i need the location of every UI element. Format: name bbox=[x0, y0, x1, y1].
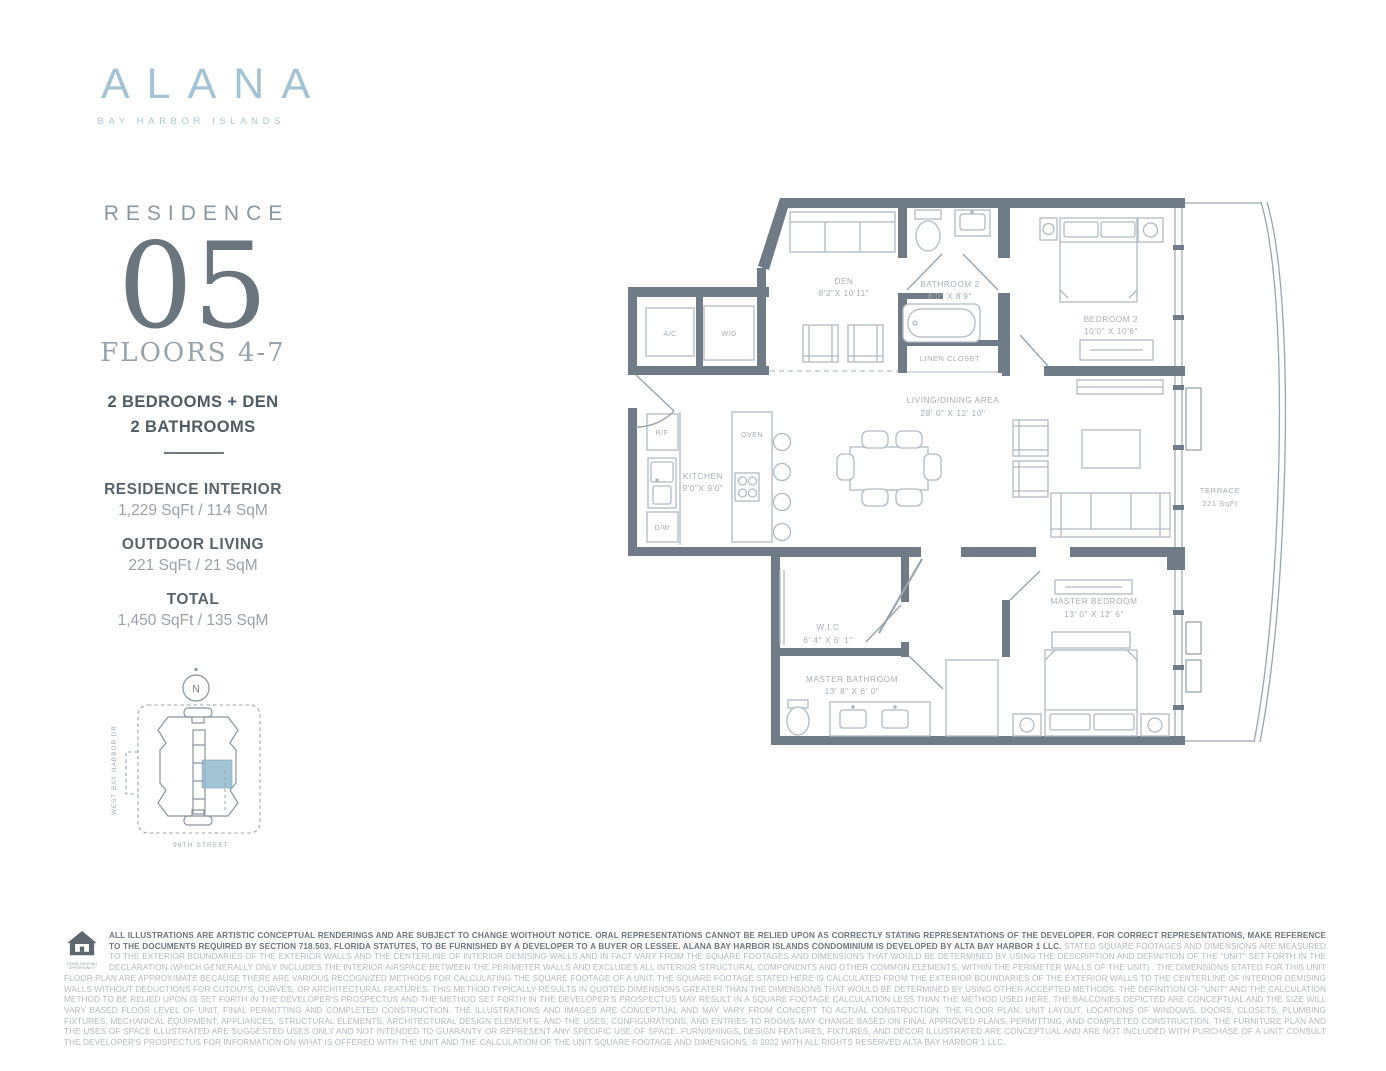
brand-tagline: BAY HARBOR ISLANDS bbox=[84, 116, 294, 127]
bathroom2-sink bbox=[955, 210, 990, 236]
master-bedroom-dims: 13' 0" X 12' 6" bbox=[1064, 610, 1124, 619]
stat-label: TOTAL bbox=[58, 591, 328, 609]
kitchen-dims: 9'0"X 9'0" bbox=[683, 484, 724, 493]
floor-plan: DEN 8'2"X 10'11" BATHROOM 2 6'0" X 8'9" … bbox=[612, 190, 1302, 770]
equal-housing-logo: EQUAL HOUSING OPPORTUNITY bbox=[64, 931, 100, 971]
coffee-table bbox=[1082, 430, 1140, 468]
living-armchairs bbox=[1013, 420, 1048, 497]
master-bed bbox=[1045, 650, 1137, 736]
stat-value: 221 SqFt / 21 SqM bbox=[58, 557, 328, 575]
wic-label: W.I.C bbox=[816, 623, 839, 632]
unit-highlight bbox=[202, 760, 232, 788]
bathroom2-dims: 6'0" X 8'9" bbox=[928, 292, 972, 301]
master-bedroom-door bbox=[1010, 571, 1040, 600]
equal-housing-label: EQUAL HOUSING OPPORTUNITY bbox=[64, 962, 100, 971]
stat-value: 1,450 SqFt / 135 SqM bbox=[58, 612, 328, 630]
master-bathroom-label: MASTER BATHROOM bbox=[806, 675, 898, 684]
master-bench bbox=[1052, 632, 1130, 648]
config-bathrooms: 2 BATHROOMS bbox=[58, 415, 328, 440]
bedroom2-label: BEDROOM 2 bbox=[1084, 315, 1139, 324]
bedroom2-bed bbox=[1060, 218, 1137, 302]
brand-logo: ALANA BAY HARBOR ISLANDS bbox=[84, 60, 294, 127]
oven-label: OVEN bbox=[741, 430, 763, 439]
master-bedroom-label: MASTER BEDROOM bbox=[1050, 597, 1137, 606]
den-label: DEN bbox=[834, 277, 853, 286]
master-toilet bbox=[787, 700, 809, 735]
legal-disclaimer: ALL ILLUSTRATIONS ARE ARTISTIC CONCEPTUA… bbox=[64, 931, 1326, 1049]
residence-floors: FLOORS 4-7 bbox=[58, 338, 328, 368]
residence-block: RESIDENCE 05 FLOORS 4-7 2 BEDROOMS + DEN… bbox=[58, 202, 328, 440]
compass-n: N bbox=[192, 684, 200, 696]
living-dining-dims: 28' 0" X 12' 10" bbox=[921, 409, 986, 418]
stat-outdoor-living: OUTDOOR LIVING 221 SqFt / 21 SqM bbox=[58, 536, 328, 575]
master-dresser bbox=[1055, 580, 1132, 594]
bedroom2-dims: 10'0" X 10'6" bbox=[1084, 327, 1138, 336]
compass-dot bbox=[194, 668, 197, 671]
bedroom2-door bbox=[1020, 335, 1048, 366]
kitchen-label: KITCHEN bbox=[683, 472, 723, 481]
stat-label: RESIDENCE INTERIOR bbox=[58, 481, 328, 499]
island-stools bbox=[774, 434, 791, 541]
residence-config: 2 BEDROOMS + DEN 2 BATHROOMS bbox=[58, 390, 328, 440]
kitchen-sink bbox=[648, 458, 676, 508]
den-chairs bbox=[803, 325, 883, 362]
wd-label: W/D bbox=[721, 329, 736, 338]
master-shower bbox=[946, 660, 998, 736]
street-south-label: 99TH STREET bbox=[173, 842, 229, 849]
wic-dims: 6' 4" X 6' 1" bbox=[803, 636, 853, 645]
master-vanity bbox=[830, 702, 930, 736]
living-dining-label: LIVING/DINING AREA bbox=[907, 396, 1000, 405]
master-bath-door bbox=[909, 656, 943, 689]
bathroom2-label: BATHROOM 2 bbox=[920, 280, 980, 289]
terrace-outline bbox=[1185, 202, 1285, 742]
master-bathroom-dims: 13' 8" X 6' 0" bbox=[825, 687, 880, 696]
bathroom2-toilet bbox=[915, 210, 941, 251]
window-wall bbox=[1175, 208, 1182, 736]
brand-name: ALANA bbox=[84, 60, 294, 109]
stat-residence-interior: RESIDENCE INTERIOR 1,229 SqFt / 114 SqM bbox=[58, 481, 328, 520]
residence-number: 05 bbox=[58, 226, 328, 346]
linen-closet-label: LINEN CLOSET bbox=[920, 354, 981, 363]
terrace-dims: 221 SqFt bbox=[1202, 499, 1238, 508]
site-key-map: N WEST BAY HARBOR DR 99TH STREET bbox=[100, 655, 305, 865]
bathroom2-tub bbox=[903, 304, 980, 342]
ac-label: A/C bbox=[663, 329, 676, 338]
wic-shelving bbox=[780, 570, 784, 645]
equal-housing-house-icon bbox=[67, 931, 97, 957]
living-sofa bbox=[1051, 493, 1170, 537]
floorplan-sheet: ALANA BAY HARBOR ISLANDS RESIDENCE 05 FL… bbox=[0, 0, 1386, 1071]
disclaimer-regular: STATED SQUARE FOOTAGES AND DIMENSIONS AR… bbox=[64, 942, 1326, 1047]
config-bedrooms: 2 BEDROOMS + DEN bbox=[58, 390, 328, 415]
tv-console bbox=[1077, 380, 1163, 394]
area-stats: RESIDENCE INTERIOR 1,229 SqFt / 114 SqM … bbox=[58, 481, 328, 646]
den-sofa bbox=[790, 212, 895, 252]
wic-door bbox=[866, 605, 901, 642]
divider-rule bbox=[164, 452, 224, 454]
stat-label: OUTDOOR LIVING bbox=[58, 536, 328, 554]
street-west-label: WEST BAY HARBOR DR bbox=[111, 725, 118, 815]
dw-label: D/W bbox=[654, 523, 669, 532]
footer: EQUAL HOUSING OPPORTUNITY ALL ILLUSTRATI… bbox=[64, 931, 1326, 1049]
den-dims: 8'2"X 10'11" bbox=[819, 289, 870, 298]
bedroom2-dresser bbox=[1080, 340, 1153, 360]
stat-value: 1,229 SqFt / 114 SqM bbox=[58, 502, 328, 520]
rf-label: R/F bbox=[656, 428, 669, 437]
terrace-label: TERRACE bbox=[1200, 486, 1241, 495]
dining-table bbox=[850, 447, 928, 490]
stat-total: TOTAL 1,450 SqFt / 135 SqM bbox=[58, 591, 328, 630]
